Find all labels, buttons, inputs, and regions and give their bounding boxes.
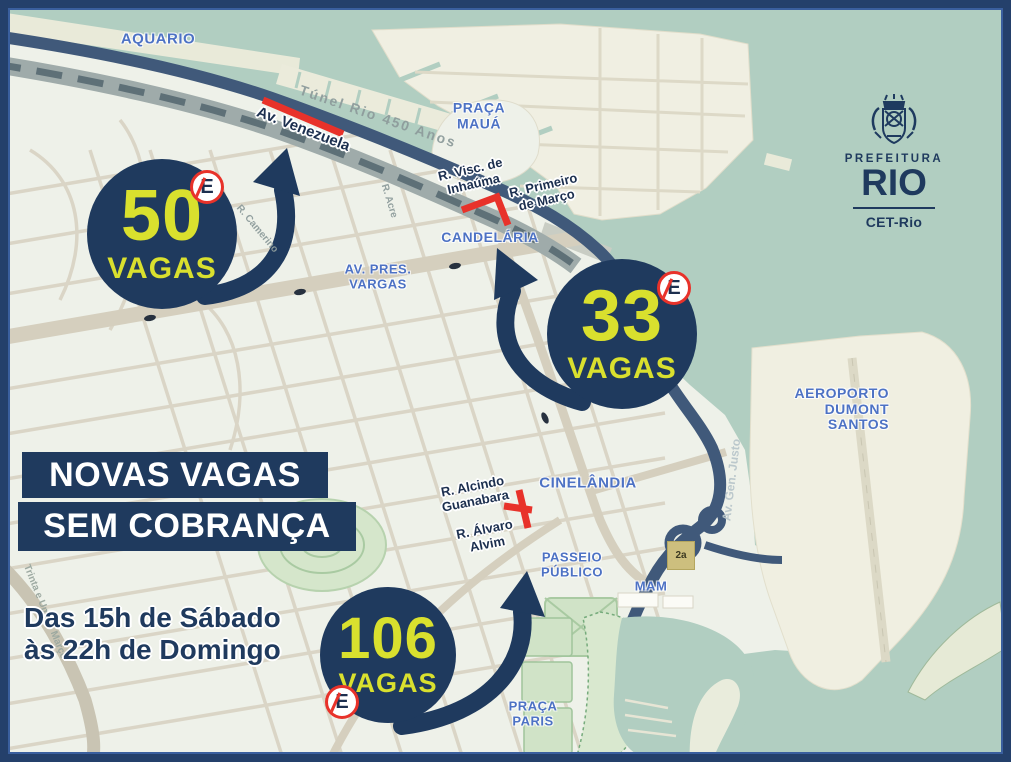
schedule-text: Das 15h de Sábado às 22h de Domingo: [24, 602, 281, 666]
label-av-pres-vargas: AV. PRES. VARGAS: [345, 262, 412, 291]
headline-line2-box: SEM COBRANÇA: [18, 502, 356, 551]
badge-33-count: 33: [581, 282, 663, 350]
schedule-line2: às 22h de Domingo: [24, 634, 281, 666]
badge-50-unit: VAGAS: [107, 252, 216, 286]
label-passeio-publico: PASSEIO PÚBLICO: [541, 550, 603, 579]
parking-sign-letter: E: [667, 277, 680, 300]
logo-dept: CET-Rio: [840, 214, 948, 230]
label-aeroporto: AEROPORTO DUMONT SANTOS: [795, 386, 889, 433]
schedule-line1: Das 15h de Sábado: [24, 602, 281, 634]
map-marker-2a: 2a: [667, 541, 695, 570]
label-cinelandia: CINELÂNDIA: [539, 476, 637, 493]
headline-line1: NOVAS VAGAS: [49, 456, 301, 495]
headline-line2: SEM COBRANÇA: [43, 507, 330, 546]
label-candelaria: CANDELÁRIA: [441, 230, 539, 246]
parking-sign-icon: E: [190, 170, 224, 204]
logo-city: RIO: [840, 165, 948, 200]
badge-33-unit: VAGAS: [567, 352, 676, 386]
parking-sign-letter: E: [335, 691, 348, 714]
headline-line1-box: NOVAS VAGAS: [22, 452, 328, 498]
poster-frame: Túnel Rio 450 Anos R. Acre R. Camerino A…: [0, 0, 1011, 762]
logo-divider: [853, 207, 935, 209]
label-mam: MAM: [635, 580, 668, 595]
label-aquario: AQUARIO: [121, 32, 195, 49]
prefeitura-rio-logo: PREFEITURA RIO CET-Rio: [840, 92, 948, 230]
prefeitura-crest-icon: [865, 92, 923, 148]
parking-sign-icon: E: [657, 271, 691, 305]
parking-sign-letter: E: [200, 176, 213, 199]
label-praca-paris: PRAÇA PARIS: [509, 699, 558, 728]
badge-106-count: 106: [338, 611, 438, 666]
parking-sign-icon: E: [325, 685, 359, 719]
label-praca-maua: PRAÇA MAUÁ: [453, 100, 505, 131]
